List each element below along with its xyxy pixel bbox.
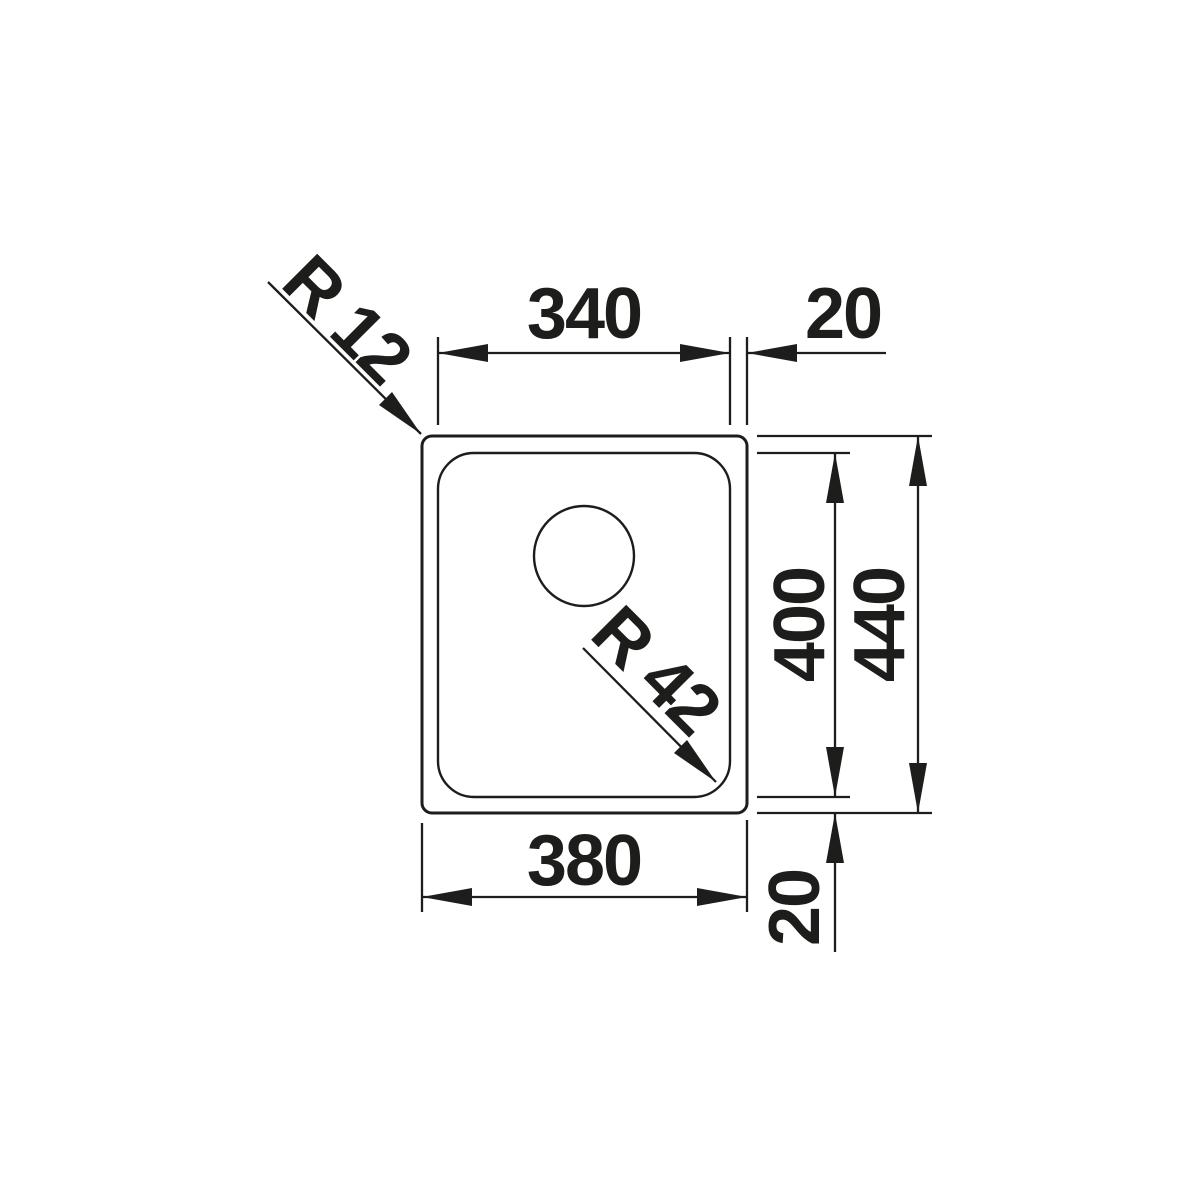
arrow-440-top: [909, 436, 927, 486]
label-rim-offset-bottom: 20: [755, 870, 835, 946]
arrow-400-top: [826, 453, 844, 503]
label-outer-corner-radius: R 12: [267, 240, 425, 398]
arrow-20-bottom: [826, 813, 844, 863]
arrow-340-left: [438, 344, 488, 362]
sink-dimension-diagram: 340 20 400 440 20 380 R 12 R 42: [0, 0, 1200, 1200]
arrow-20-top: [747, 344, 797, 362]
label-inner-height: 400: [760, 568, 840, 682]
arrow-440-bottom: [909, 763, 927, 813]
label-outer-width: 380: [527, 821, 641, 901]
drain-hole-circle: [534, 506, 634, 606]
label-rim-offset-right: 20: [805, 274, 881, 354]
arrow-380-right: [697, 888, 747, 906]
label-inner-width: 340: [527, 274, 641, 354]
arrow-340-right: [680, 344, 730, 362]
technical-drawing-canvas: 340 20 400 440 20 380 R 12 R 42: [0, 0, 1200, 1200]
arrow-400-bottom: [826, 747, 844, 797]
label-outer-height: 440: [840, 568, 920, 682]
label-bowl-corner-radius: R 42: [576, 591, 734, 749]
arrow-380-left: [422, 888, 472, 906]
